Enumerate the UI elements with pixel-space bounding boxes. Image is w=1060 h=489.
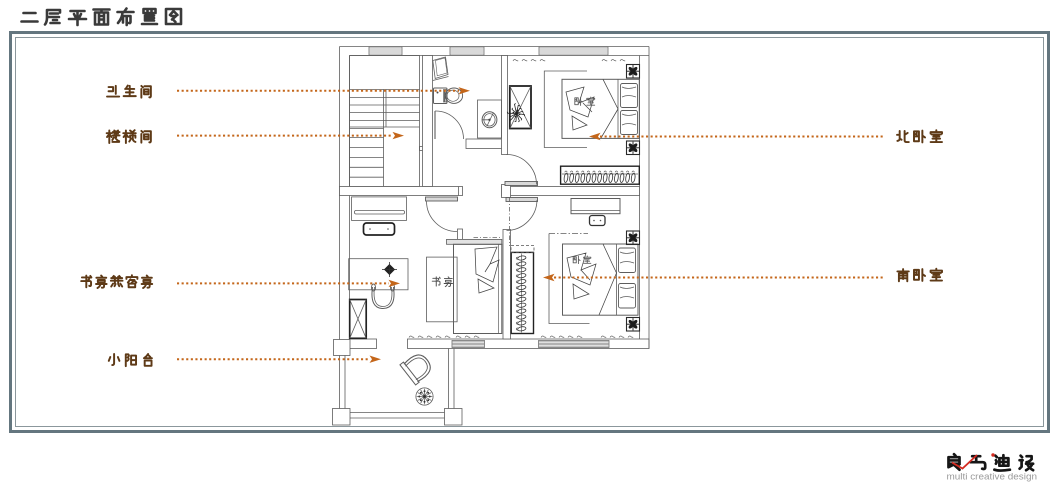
svg-text:multi creative design: multi creative design [947, 472, 1038, 482]
